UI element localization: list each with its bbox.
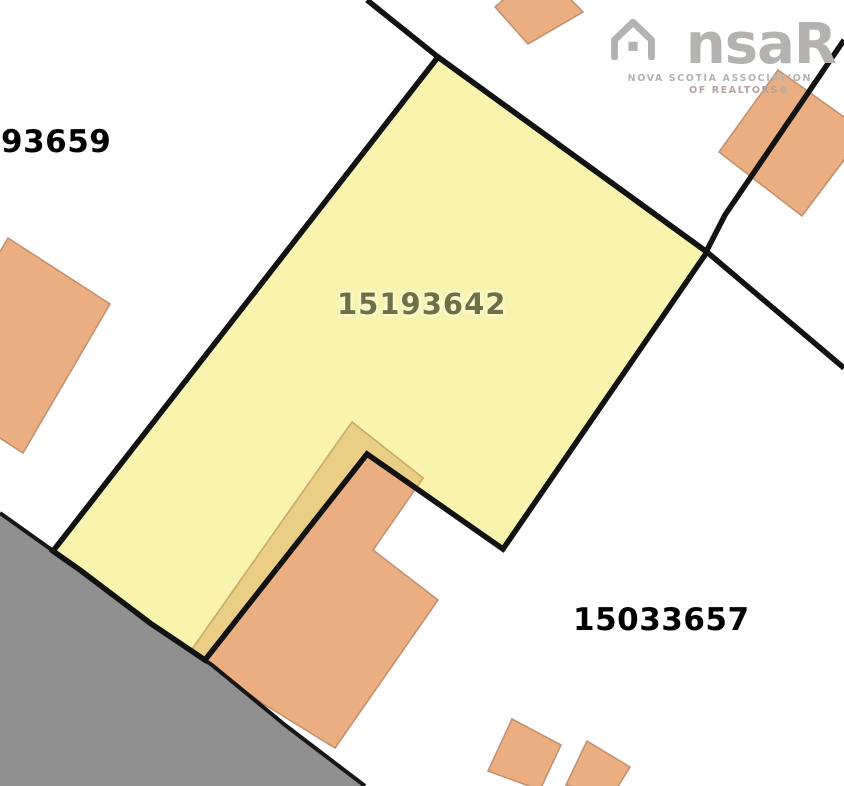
building-south-small-1 (488, 719, 561, 786)
nsar-logo-suffix: aR (757, 22, 836, 68)
parcel-map: 15193642 93659 15033657 ns aR NOVA SCOTI… (0, 0, 844, 786)
building-south-small-2 (566, 741, 630, 786)
house-icon (609, 16, 657, 60)
nsar-logo-wordmark: ns aR (606, 16, 836, 68)
parcel-map-canvas (0, 0, 844, 786)
west-parcel-id-label: 93659 (1, 127, 111, 158)
building-west (0, 238, 110, 453)
nsar-logo-prefix: ns (686, 22, 757, 68)
subject-parcel-id-label: 15193642 (337, 290, 506, 319)
nsar-org-line1: NOVA SCOTIA ASSOCIATION (606, 73, 812, 85)
nsar-logo: ns aR NOVA SCOTIA ASSOCIATION OF REALTOR… (606, 16, 836, 97)
southeast-parcel-id-label: 15033657 (573, 605, 750, 636)
building-north-small (495, 0, 583, 44)
nsar-org-line2: OF REALTORS® (606, 85, 790, 97)
